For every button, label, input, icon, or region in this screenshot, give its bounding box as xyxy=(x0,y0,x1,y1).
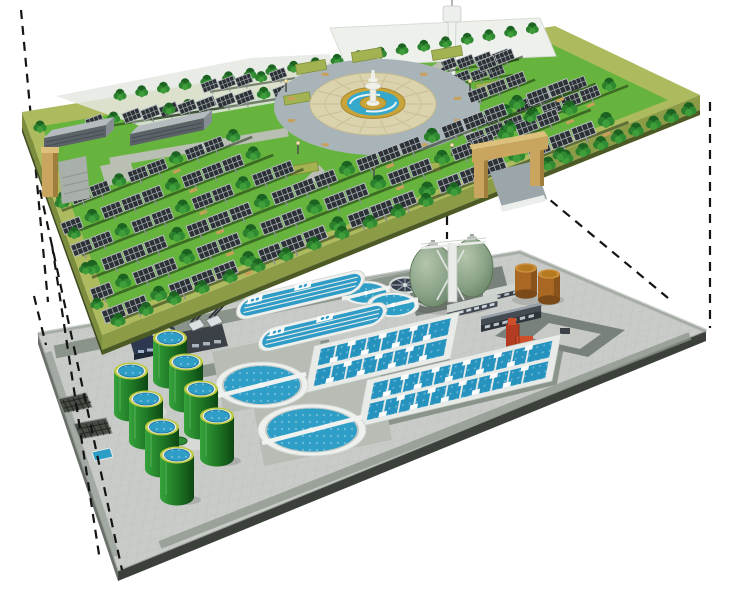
canopy xyxy=(183,256,191,264)
bench xyxy=(288,119,295,122)
canopy xyxy=(258,201,266,209)
canopy xyxy=(486,35,492,41)
canopy xyxy=(421,46,427,52)
canopy xyxy=(114,320,121,327)
hub xyxy=(403,283,407,287)
window xyxy=(214,340,221,343)
water-texture xyxy=(189,383,214,395)
water-texture xyxy=(174,356,199,368)
bench xyxy=(454,97,461,100)
canopy xyxy=(529,28,535,34)
canopy xyxy=(366,222,373,229)
canopy xyxy=(173,234,181,242)
canopy xyxy=(544,163,551,170)
illustration-canvas xyxy=(0,0,740,589)
base xyxy=(538,295,560,305)
canopy xyxy=(566,108,574,116)
hub xyxy=(258,383,266,388)
stair-tower xyxy=(448,244,457,302)
lamp-head xyxy=(284,79,288,83)
canopy xyxy=(450,189,457,196)
canopy xyxy=(182,84,188,90)
canopy xyxy=(117,95,123,101)
bench xyxy=(420,73,427,76)
canopy xyxy=(422,200,429,207)
canopy xyxy=(250,153,257,160)
window xyxy=(147,349,153,352)
pillar-shade xyxy=(53,151,58,197)
canopy xyxy=(394,211,401,218)
canopy xyxy=(282,254,289,261)
canopy xyxy=(226,276,233,283)
top-inner xyxy=(518,265,534,272)
canopy xyxy=(464,39,470,45)
canopy xyxy=(602,120,610,128)
water-texture xyxy=(158,332,183,344)
large-clarifier xyxy=(216,362,308,408)
canopy xyxy=(597,143,604,150)
canopy xyxy=(580,150,587,157)
canopy xyxy=(37,126,43,132)
canopy xyxy=(438,157,446,165)
sludge-tank xyxy=(538,269,560,305)
canopy xyxy=(139,91,145,97)
canopy xyxy=(170,298,177,305)
canopy xyxy=(94,303,100,309)
canopy xyxy=(442,42,448,48)
water-texture xyxy=(134,393,159,405)
tip xyxy=(371,70,374,73)
hub xyxy=(364,291,368,295)
canopy xyxy=(508,32,514,38)
canopy xyxy=(116,180,123,187)
canopy xyxy=(142,309,149,316)
canopy xyxy=(239,183,246,190)
canopy xyxy=(88,216,95,223)
lamp-head xyxy=(450,143,454,147)
ramp-wall xyxy=(58,156,90,204)
window xyxy=(138,350,144,353)
canopy xyxy=(230,135,237,142)
canopy xyxy=(260,93,266,99)
lamp-head xyxy=(468,79,472,83)
canopy xyxy=(310,243,317,250)
canopy xyxy=(198,287,205,294)
canopy xyxy=(428,135,436,143)
large-clarifier xyxy=(258,404,366,456)
canopy xyxy=(311,207,319,215)
canopy xyxy=(668,116,675,123)
canopy xyxy=(527,116,533,122)
canopy xyxy=(258,77,264,83)
tower-head xyxy=(443,6,461,22)
canopy xyxy=(507,126,513,132)
window xyxy=(192,344,199,347)
courtyard-unit xyxy=(560,328,570,334)
pillar-cap xyxy=(41,147,59,153)
canopy xyxy=(119,281,127,289)
canopy xyxy=(155,293,163,301)
tier xyxy=(365,83,381,90)
canopy xyxy=(513,102,521,110)
canopy xyxy=(632,129,639,136)
canopy xyxy=(606,84,613,91)
top-column xyxy=(371,73,375,80)
bench xyxy=(322,143,329,146)
base xyxy=(515,289,537,299)
canopy xyxy=(338,232,345,239)
canopy xyxy=(399,49,405,55)
pump-head xyxy=(508,318,516,325)
canopy xyxy=(169,184,176,191)
canopy xyxy=(650,123,657,130)
water-texture xyxy=(205,410,230,422)
canopy xyxy=(685,109,692,116)
top-inner xyxy=(541,271,557,278)
canopy xyxy=(247,231,255,239)
canopy xyxy=(160,88,166,94)
canopy xyxy=(556,154,563,161)
cutaway-diagram xyxy=(0,0,740,589)
canopy xyxy=(254,265,261,272)
canopy xyxy=(615,136,622,143)
water-texture xyxy=(150,421,175,433)
canopy xyxy=(513,154,521,162)
canopy xyxy=(343,168,351,176)
bench xyxy=(322,73,329,76)
canopy xyxy=(166,108,172,114)
sludge-tank xyxy=(515,263,537,299)
hub xyxy=(391,303,395,307)
canopy xyxy=(374,182,382,190)
window xyxy=(203,342,210,345)
canopy xyxy=(71,233,77,239)
canopy xyxy=(179,206,186,213)
bench xyxy=(288,97,295,100)
hub xyxy=(308,428,316,433)
water-texture xyxy=(165,449,190,461)
water-texture xyxy=(119,365,144,377)
canopy xyxy=(173,158,180,165)
canopy xyxy=(82,268,88,274)
lamp-head xyxy=(296,141,300,145)
canopy xyxy=(119,230,126,237)
